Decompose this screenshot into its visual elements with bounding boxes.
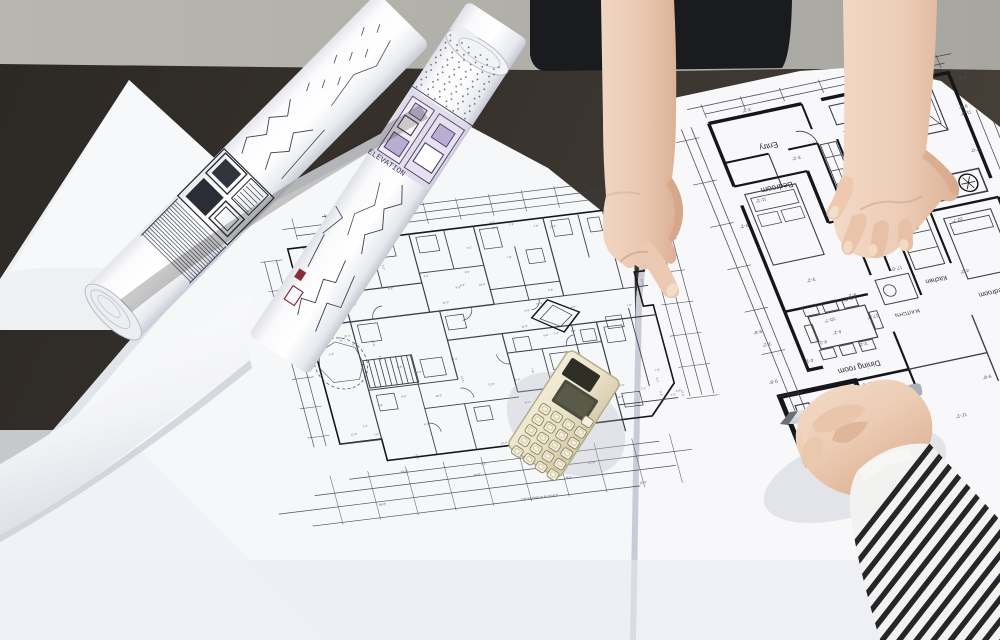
svg-text:10'-4": 10'-4" [478, 282, 486, 287]
svg-text:9'-6": 9'-6" [566, 475, 573, 480]
svg-text:6'-6": 6'-6" [397, 365, 403, 370]
svg-text:9'-6": 9'-6" [543, 333, 549, 338]
svg-text:14'-6": 14'-6" [355, 439, 363, 444]
svg-text:12'-0": 12'-0" [521, 324, 529, 329]
svg-text:3'-2": 3'-2" [423, 274, 429, 279]
svg-text:9'-6": 9'-6" [675, 388, 681, 393]
svg-text:3'-2": 3'-2" [553, 331, 559, 336]
svg-text:10'-4": 10'-4" [451, 357, 459, 362]
svg-text:3'-2": 3'-2" [670, 392, 676, 397]
svg-text:3'-2": 3'-2" [508, 222, 514, 227]
svg-text:8'-0": 8'-0" [570, 329, 576, 334]
svg-text:8'-0": 8'-0" [424, 422, 430, 427]
svg-text:6'-6": 6'-6" [524, 308, 530, 313]
svg-text:3'-2": 3'-2" [466, 245, 472, 250]
svg-text:12'-0": 12'-0" [491, 225, 499, 230]
svg-text:6'-6": 6'-6" [377, 403, 383, 408]
svg-text:7'-8": 7'-8" [373, 432, 379, 437]
svg-text:12'-0": 12'-0" [350, 432, 358, 437]
svg-text:10'-4": 10'-4" [549, 224, 557, 229]
svg-text:9'-6": 9'-6" [489, 220, 495, 225]
svg-text:7'-8": 7'-8" [654, 367, 660, 372]
svg-text:6'-6": 6'-6" [401, 394, 407, 399]
svg-text:3'-2": 3'-2" [362, 424, 368, 429]
svg-text:7'-4": 7'-4" [480, 461, 487, 466]
svg-text:12'-0": 12'-0" [500, 441, 508, 446]
svg-text:6'-6": 6'-6" [352, 342, 358, 347]
svg-text:5'-4": 5'-4" [328, 352, 334, 357]
svg-text:12'-0": 12'-0" [617, 394, 625, 399]
svg-text:8'-0": 8'-0" [464, 270, 470, 275]
svg-text:6'-6": 6'-6" [459, 283, 465, 288]
svg-text:12'-0": 12'-0" [488, 382, 496, 387]
svg-text:8'-0": 8'-0" [619, 383, 625, 388]
svg-text:3'-2": 3'-2" [641, 386, 647, 391]
svg-text:5'-4": 5'-4" [548, 288, 554, 293]
svg-text:10'-4": 10'-4" [344, 334, 352, 339]
svg-text:7'-8": 7'-8" [626, 303, 632, 308]
svg-text:12'-0": 12'-0" [442, 300, 450, 305]
svg-text:7'-8": 7'-8" [533, 224, 539, 229]
svg-text:6'-6": 6'-6" [387, 286, 393, 291]
svg-text:7'-8": 7'-8" [506, 255, 512, 260]
svg-text:14'-6": 14'-6" [415, 370, 423, 375]
svg-text:10'-4": 10'-4" [536, 301, 544, 306]
svg-text:8'-0": 8'-0" [570, 305, 576, 310]
svg-text:12'-0": 12'-0" [435, 393, 443, 398]
